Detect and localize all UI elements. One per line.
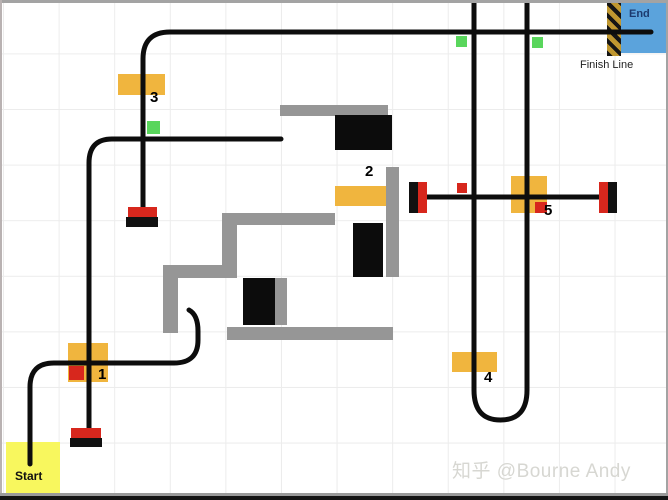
checkpoint-1-label: 1 [98,367,106,382]
barrier-cap-black [608,182,617,213]
start-label: Start [15,469,42,483]
checkpoint-4-label: 4 [484,370,492,385]
frame-bottom-black [0,496,668,500]
barrier-cap-black [409,182,418,213]
course-map: 1 2 3 4 5 Start End Finish Line 知乎 @Bour… [0,0,668,500]
stop-marker-red [128,207,157,217]
checkpoint-5-label: 5 [544,203,552,218]
checkpoint-2-label: 2 [365,164,373,179]
end-label: End [629,8,650,20]
barrier-cap-red [418,182,427,213]
stop-marker-black [126,217,158,227]
track-top-route [143,32,651,211]
finish-line-label: Finish Line [580,59,633,71]
stop-marker-red [71,428,101,438]
frame-left [0,0,2,500]
watermark: 知乎 @Bourne Andy [452,456,631,483]
frame-top [0,0,668,3]
track-lines [0,0,668,500]
track-start-route [30,310,198,464]
track-u-route [474,0,527,420]
checkpoint-3-label: 3 [150,90,158,105]
barrier-cap-red [599,182,608,213]
stop-marker-black [70,438,102,447]
track-checkpoint1-route [89,139,281,428]
